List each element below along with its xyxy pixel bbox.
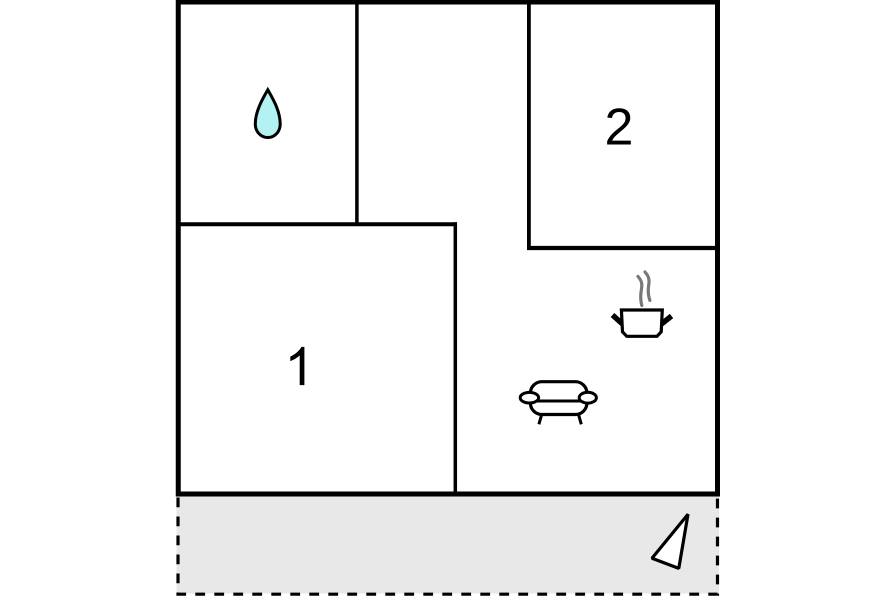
svg-text:2: 2 <box>605 99 634 157</box>
